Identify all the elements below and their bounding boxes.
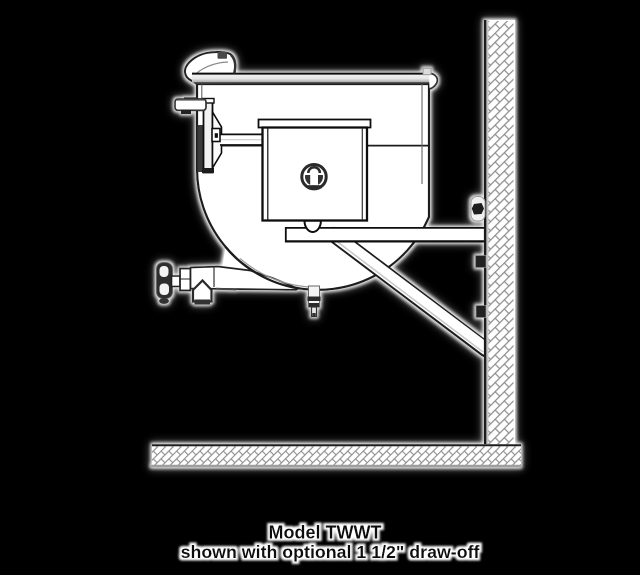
svg-text:shown with optional 1 1/2" dra: shown with optional 1 1/2" draw-off [181,542,480,562]
svg-text:Model TWWT: Model TWWT [269,523,382,543]
